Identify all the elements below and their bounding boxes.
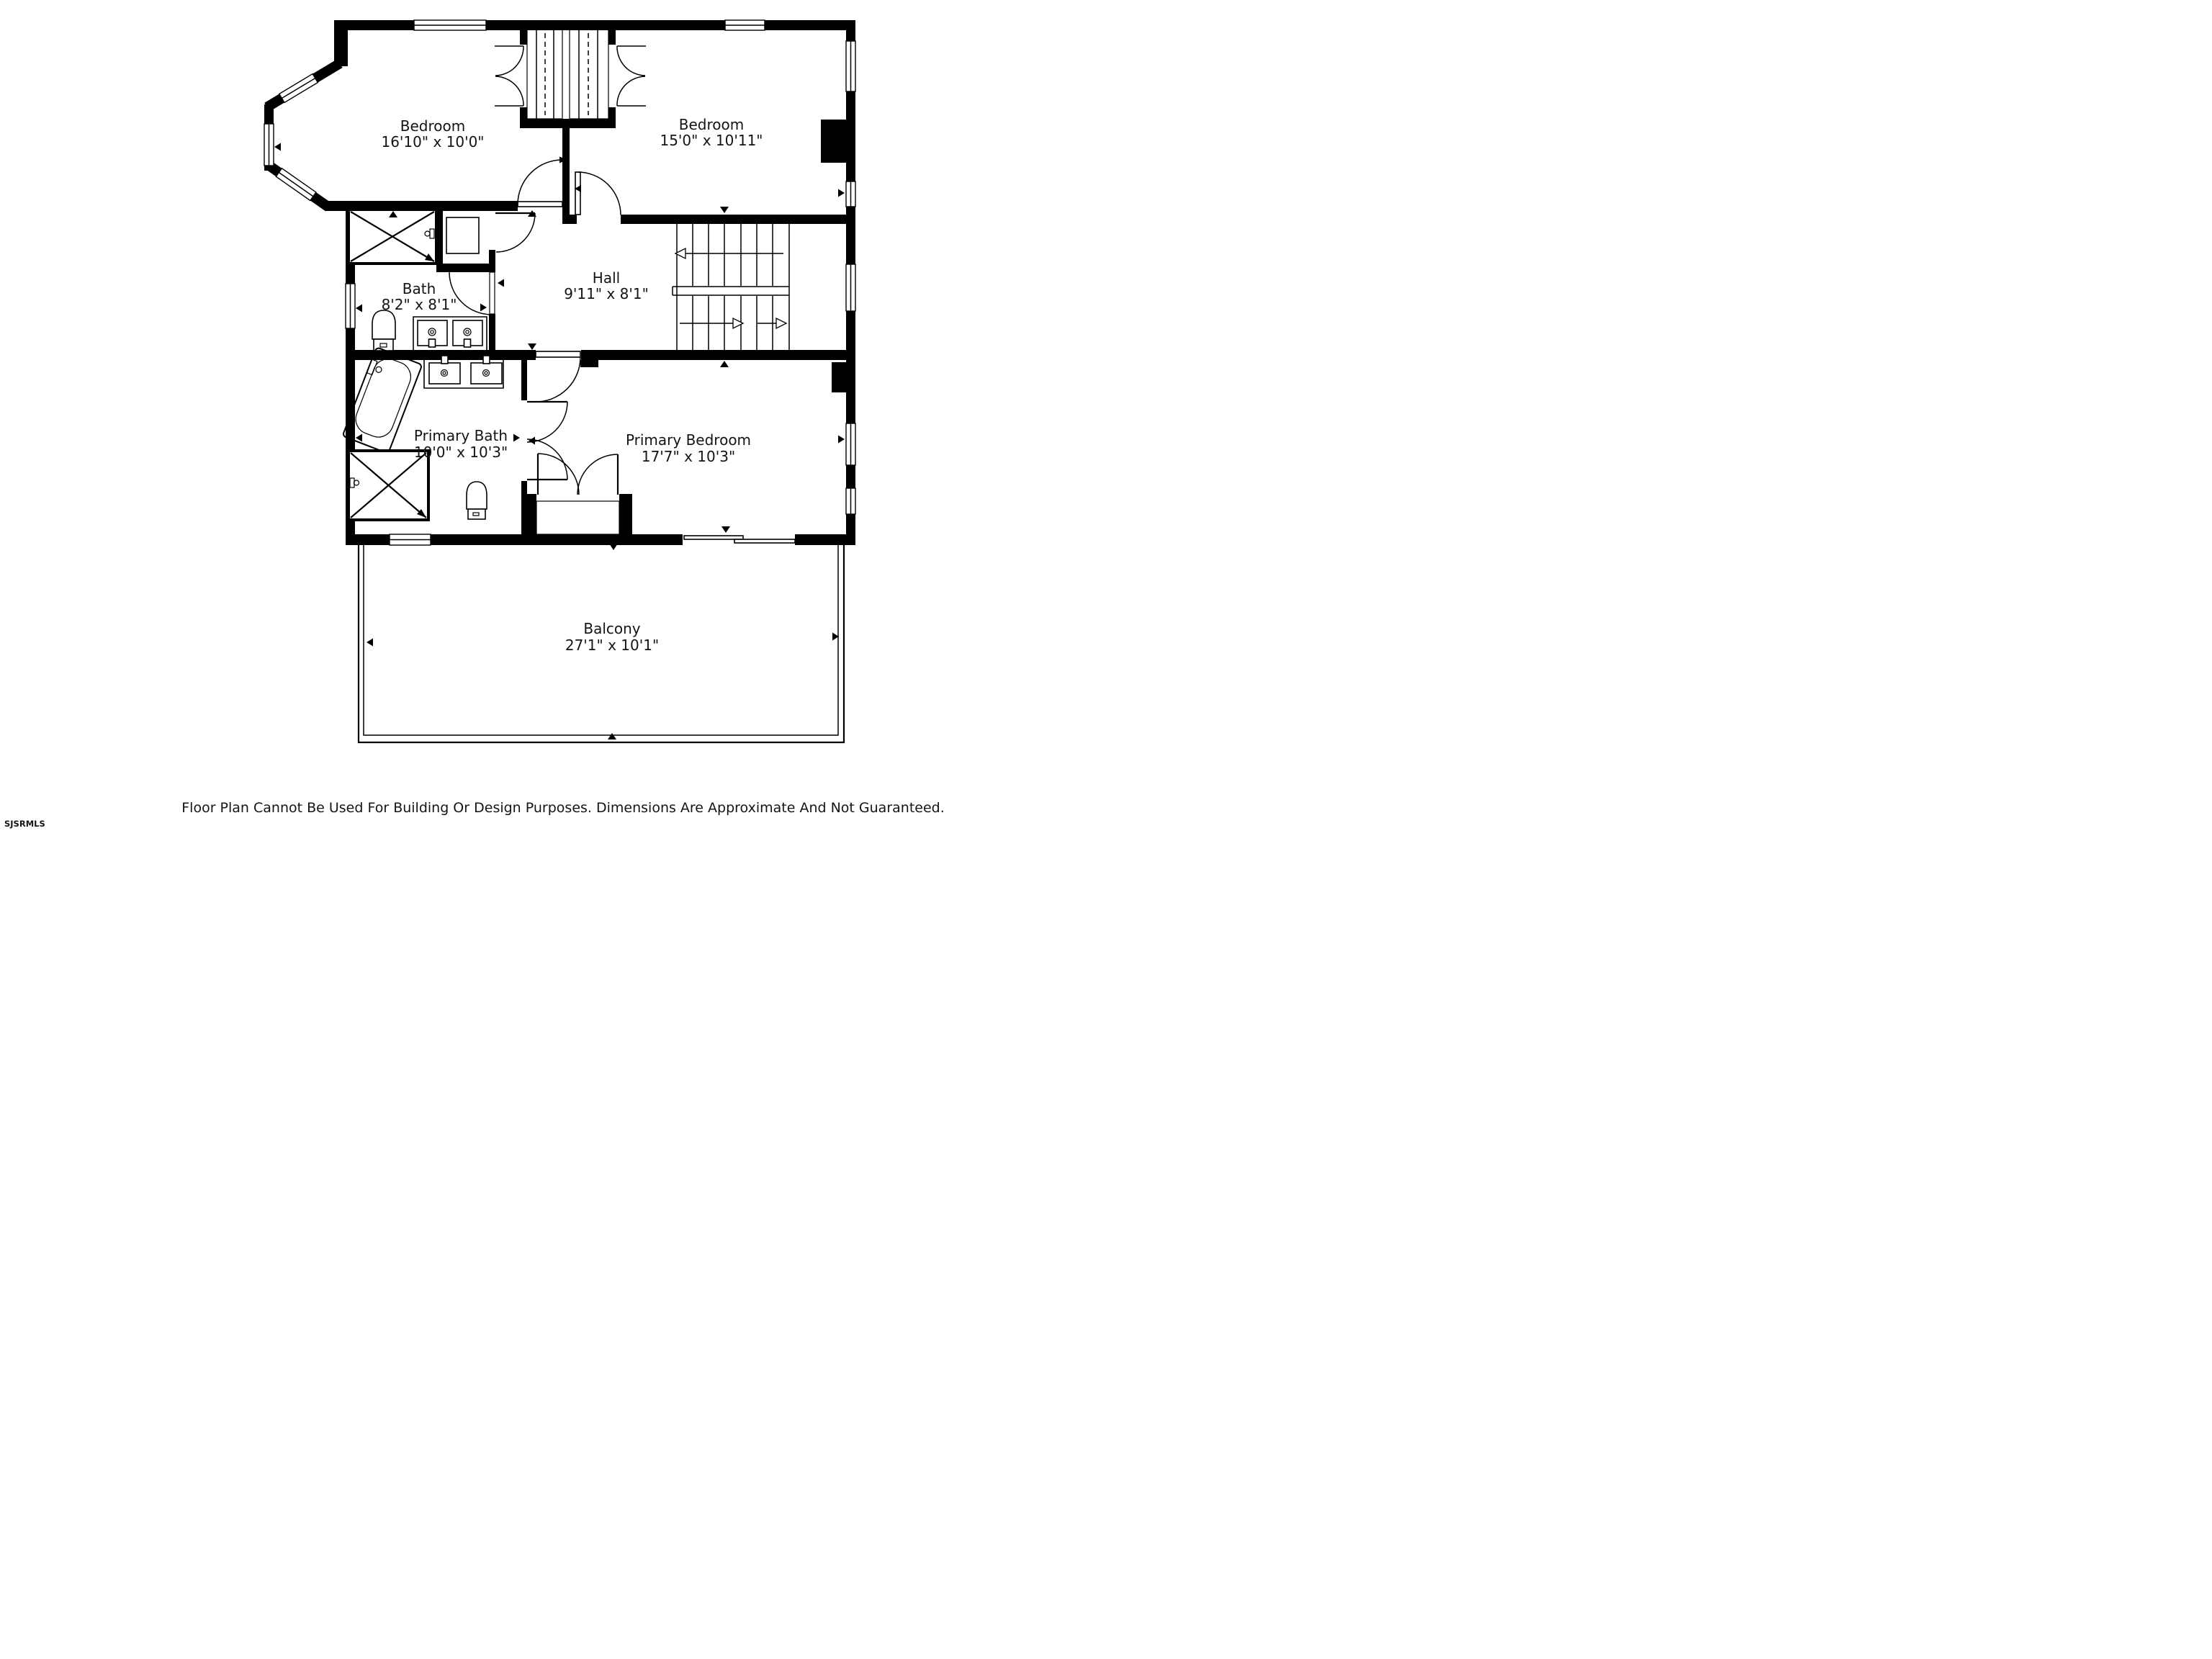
floor-plan-page: Bedroom 16'10" x 10'0" Bedroom 15'0" x 1… [0,0,1106,829]
room-label-hall: Hall [593,269,620,287]
primary-closet [536,501,619,534]
closet-left [495,30,562,119]
shower-icon [349,210,436,264]
sliding-door [683,534,795,545]
closet-right-doors [617,46,646,106]
room-dims-hall: 9'11" x 8'1" [564,285,649,302]
floor-plan-drawing: Bedroom 16'10" x 10'0" Bedroom 15'0" x 1… [0,0,1106,829]
room-dims-bath: 8'2" x 8'1" [382,296,457,313]
stair-direction-arrow-up [675,248,783,258]
room-dims-primary-bath: 10'0" x 10'3" [414,444,508,461]
room-dims-bedroom-2: 15'0" x 10'11" [660,132,763,149]
primary-toilet-icon [467,482,487,519]
room-labels: Bedroom 16'10" x 10'0" Bedroom 15'0" x 1… [381,116,763,654]
stair-direction-arrow-down [680,318,786,328]
room-label-primary-bath: Primary Bath [414,427,508,444]
bay-window-upper-wall [264,59,342,112]
closet-right [570,30,646,119]
room-dims-primary-bedroom: 17'7" x 10'3" [642,448,735,465]
room-label-bath: Bath [403,280,436,297]
toilet-icon [372,310,395,351]
primary-double-sink-vanity [424,356,503,388]
closet-left-doors [495,46,523,106]
door-linen-closet [495,213,535,252]
door-bedroom-2 [575,172,621,215]
room-label-bedroom-2: Bedroom [679,116,744,133]
staircase [673,224,789,350]
room-dims-bedroom-1: 16'10" x 10'0" [381,133,484,150]
room-dims-balcony: 27'1" x 10'1" [565,637,659,654]
bay-window-lower-wall [264,160,331,211]
disclaimer-text: Floor Plan Cannot Be Used For Building O… [181,800,945,816]
room-label-balcony: Balcony [583,620,640,637]
door-bedroom-1 [518,157,567,207]
watermark: SJSRMLS [4,819,45,829]
double-sink-vanity [413,317,487,351]
double-door-primary-closet [538,454,618,495]
primary-shower-icon [349,451,428,520]
room-label-bedroom-1: Bedroom [400,117,465,135]
room-label-primary-bedroom: Primary Bedroom [626,431,751,449]
linen-closet [446,217,479,253]
